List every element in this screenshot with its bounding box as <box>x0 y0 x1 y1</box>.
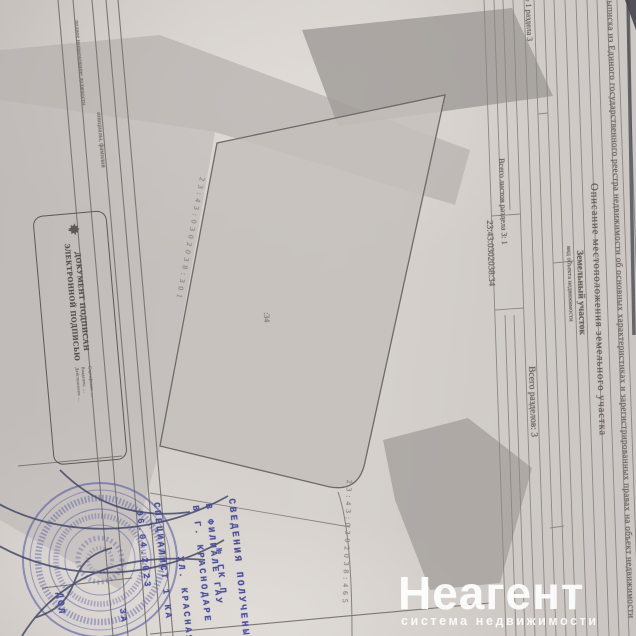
office-stamp-fragment: ДОЛ <box>55 592 67 616</box>
watermark-tagline: система недвижимости <box>401 614 599 628</box>
object-type: Земельный участок <box>574 250 586 335</box>
coat-of-arms-icon <box>60 221 81 238</box>
object-type-caption: вид объекта недвижимости <box>565 246 574 322</box>
office-stamp-line-8: ЗА <box>117 608 128 625</box>
parcel-number-label: :34 <box>262 312 270 323</box>
sheet-number-label: Лист № 1 раздела 3 <box>523 0 533 41</box>
watermark-brand: Неагент <box>398 566 584 620</box>
photo-of-cadastral-extract: Выписка из Единого государственного реес… <box>0 0 636 636</box>
cadastral-number: 23:43:0302038:34 <box>485 220 496 286</box>
total-sections-label: Всего разделов: 3 <box>526 366 538 437</box>
total-sheets-label: Всего листов раздела 3: 1 <box>497 158 508 245</box>
